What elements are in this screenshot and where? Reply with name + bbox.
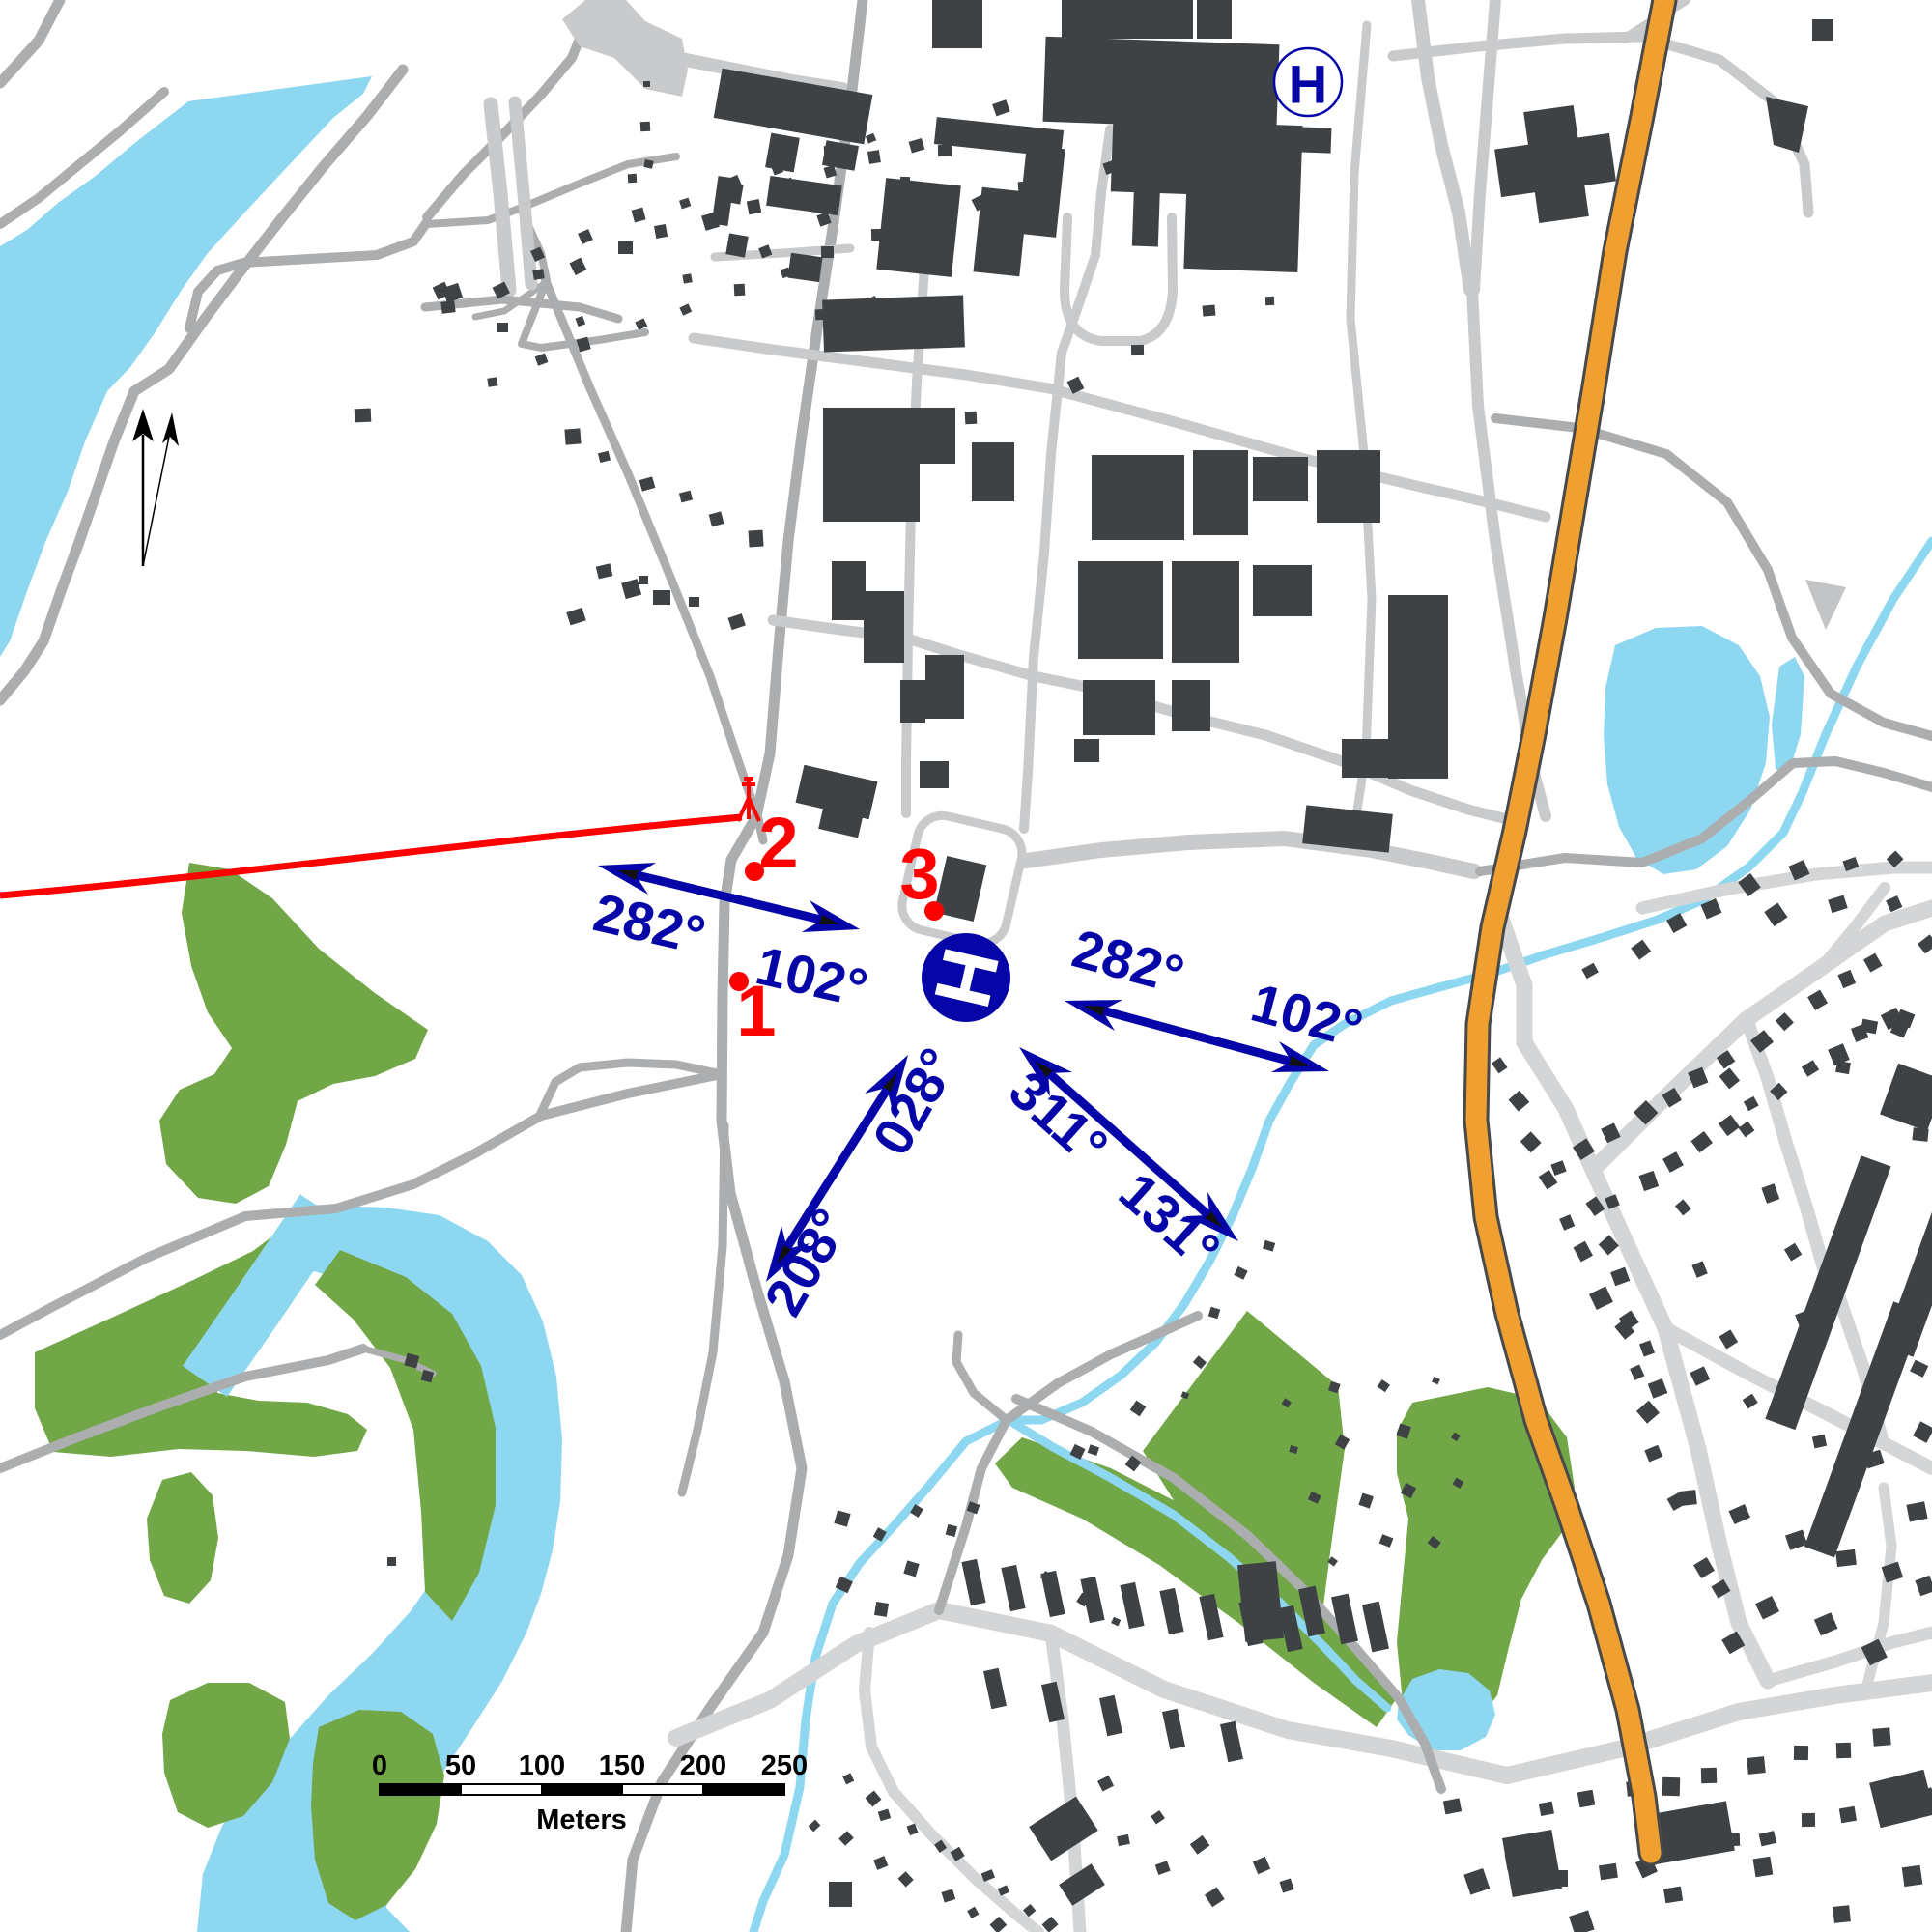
svg-text:0: 0 bbox=[372, 1750, 387, 1781]
svg-text:250: 250 bbox=[761, 1750, 808, 1781]
svg-text:150: 150 bbox=[599, 1750, 645, 1781]
svg-text:Meters: Meters bbox=[536, 1804, 627, 1835]
svg-text:3: 3 bbox=[899, 834, 939, 914]
svg-text:50: 50 bbox=[445, 1750, 476, 1781]
svg-text:200: 200 bbox=[680, 1750, 726, 1781]
svg-text:2: 2 bbox=[758, 803, 798, 883]
svg-text:100: 100 bbox=[519, 1750, 565, 1781]
svg-text:H: H bbox=[1289, 54, 1327, 115]
